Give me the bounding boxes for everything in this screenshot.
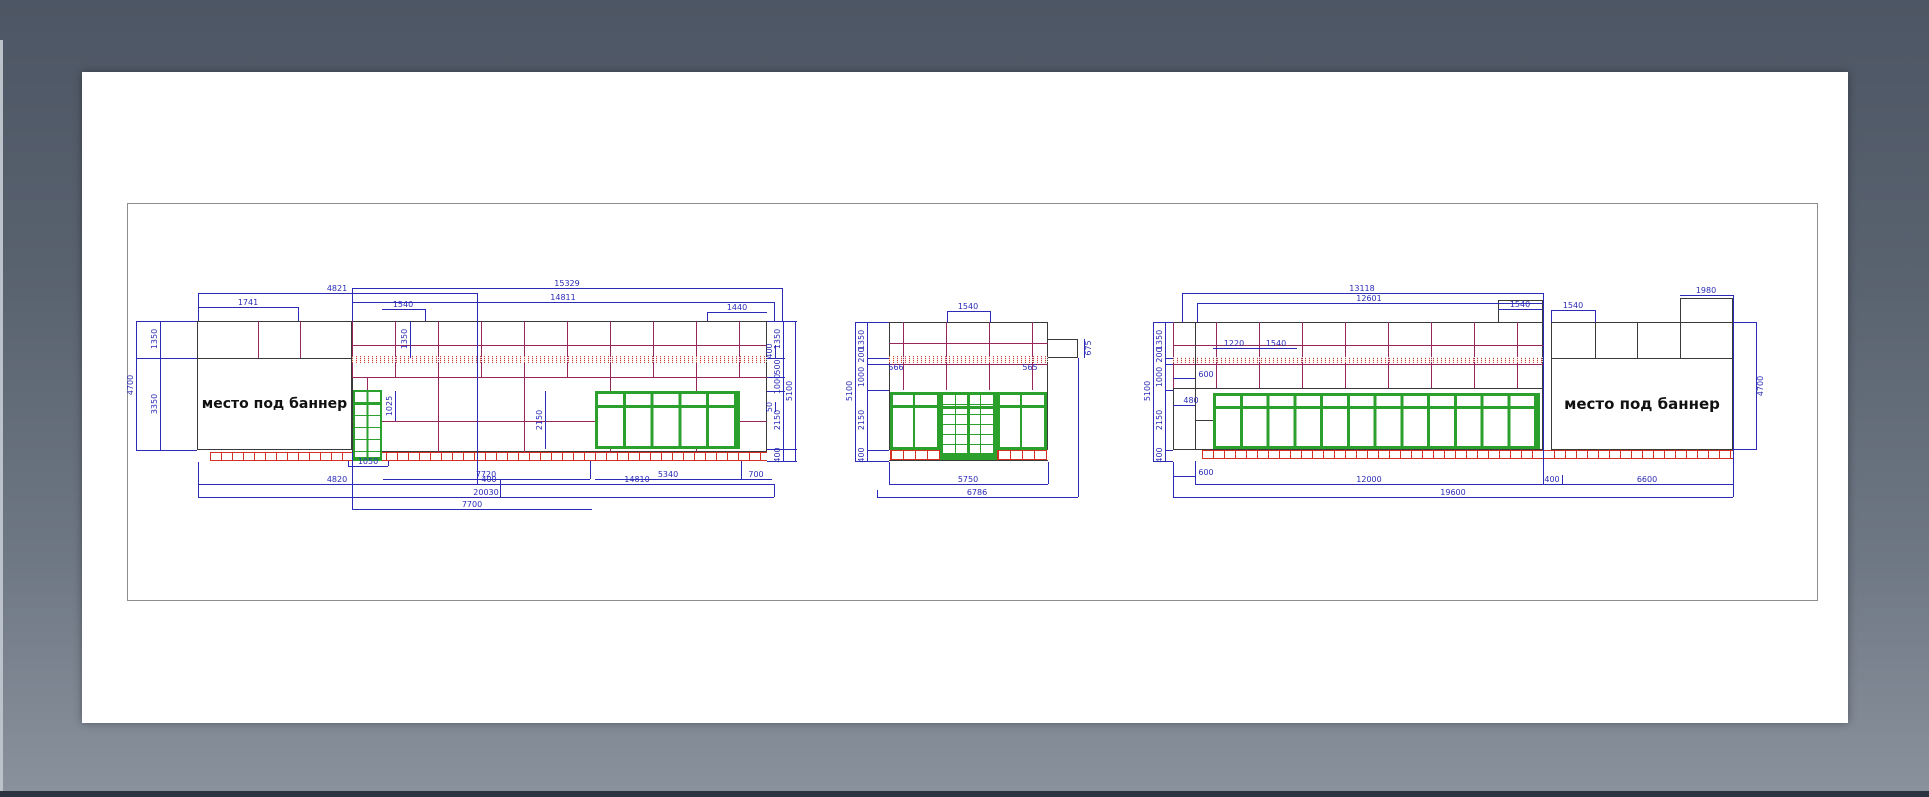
dim-line	[707, 312, 767, 313]
parapet-mullion	[1680, 322, 1681, 358]
storefront-window	[595, 391, 740, 449]
dim-label: 5100	[846, 381, 854, 401]
dim-label: 1000	[1156, 367, 1164, 387]
extension-line	[136, 450, 197, 451]
extension-line	[1733, 449, 1756, 450]
dim-line	[160, 321, 161, 358]
dim-line	[352, 302, 774, 303]
extension-line	[1078, 358, 1079, 497]
side-ledge	[1048, 339, 1078, 358]
extension-line	[298, 307, 299, 321]
extension-line	[1153, 461, 1173, 462]
dim-label: 1540	[393, 301, 413, 309]
extension-line	[1543, 293, 1544, 484]
dim-label: 1350	[401, 329, 409, 349]
banner-label-left: место под баннер	[202, 396, 347, 412]
dim-label: 15329	[554, 280, 579, 288]
dim-label: 700	[748, 471, 763, 479]
dim-line	[1173, 476, 1195, 477]
base-bottom-line	[889, 460, 1048, 461]
dim-label: 500	[774, 359, 782, 374]
dim-label: 5100	[786, 381, 794, 401]
dim-label: 2150	[858, 410, 866, 430]
extension-line	[774, 484, 775, 497]
dim-label: 600	[1198, 371, 1213, 379]
dim-label: 13118	[1349, 285, 1374, 293]
extension-line	[1197, 303, 1198, 322]
dim-line	[595, 479, 741, 480]
extension-line	[425, 309, 426, 321]
dim-label: 7700	[462, 501, 482, 509]
extension-line	[198, 293, 199, 321]
dim-line	[1255, 348, 1297, 349]
dim-line	[352, 288, 782, 289]
dim-label: 200	[858, 347, 866, 362]
dim-label: 1540	[1266, 340, 1286, 348]
dim-label: 4821	[327, 285, 347, 293]
extension-line	[767, 377, 785, 378]
extension-line	[707, 312, 708, 321]
speckle-band	[352, 356, 767, 363]
extension-line	[1153, 322, 1173, 323]
dim-label: 1540	[1563, 302, 1583, 310]
grid-line	[1195, 420, 1213, 421]
dim-label: 1350	[151, 329, 159, 349]
dim-label: 4820	[327, 476, 347, 484]
extension-line	[136, 358, 197, 359]
parapet-mullion	[1595, 322, 1596, 358]
extension-line	[990, 311, 991, 322]
dim-line	[198, 484, 477, 485]
dim-label: 6600	[1637, 476, 1657, 484]
extension-line	[741, 461, 742, 479]
left-facade-upper-grid	[352, 321, 767, 377]
dim-label: 6786	[967, 489, 987, 497]
extension-line	[1195, 461, 1196, 484]
dim-label: 5340	[658, 471, 678, 479]
extension-line	[477, 293, 478, 484]
dim-label: 600	[1198, 469, 1213, 477]
dim-chain-line	[867, 322, 868, 461]
dim-label: 3350	[151, 394, 159, 414]
drawing-sheet: место под баннер 4821 1741 15329 14811 1…	[82, 72, 1848, 723]
dim-line	[795, 321, 796, 461]
extension-line	[348, 461, 349, 466]
extension-line	[1165, 390, 1173, 391]
extension-line	[1165, 358, 1173, 359]
extension-line	[767, 461, 797, 462]
dim-label: 2150	[1156, 410, 1164, 430]
extension-line	[1048, 462, 1049, 484]
dim-label: 1540	[1510, 301, 1530, 309]
extension-line	[782, 288, 783, 321]
dim-line	[947, 311, 990, 312]
dim-label: 1980	[1696, 287, 1716, 295]
dim-label: 12601	[1356, 295, 1381, 303]
extension-line	[590, 461, 591, 479]
dim-label: 565	[1022, 364, 1037, 372]
dim-line	[741, 479, 772, 480]
dim-line	[1173, 405, 1195, 406]
dim-line	[477, 484, 500, 485]
entrance-double-door	[940, 392, 997, 460]
extension-line	[352, 288, 353, 321]
storefront-window	[1213, 393, 1540, 449]
extension-line	[774, 302, 775, 321]
banner-area-left: место под баннер	[197, 358, 352, 450]
grid-line	[352, 345, 767, 346]
extension-line	[1173, 462, 1174, 497]
entrance-door	[353, 390, 382, 461]
dim-label: 400	[1544, 476, 1559, 484]
extension-line	[388, 461, 389, 466]
extension-line	[855, 322, 889, 323]
dim-label: 2150	[536, 410, 544, 430]
dim-line	[1213, 348, 1255, 349]
extension-line	[767, 449, 797, 450]
brick-base	[997, 450, 1047, 460]
dim-label: 1025	[386, 396, 394, 416]
storefront-window	[997, 392, 1047, 450]
grid-line	[889, 343, 1048, 344]
dim-line	[877, 497, 1078, 498]
dim-line	[500, 484, 774, 485]
dim-label: 400	[481, 476, 496, 484]
extension-line	[867, 364, 889, 365]
extension-line	[767, 321, 797, 322]
grid-line	[1173, 388, 1543, 389]
grid-line	[1173, 364, 1543, 365]
extension-line	[1182, 293, 1183, 322]
extension-line	[767, 391, 785, 392]
extension-line	[1595, 310, 1596, 322]
brick-base	[210, 452, 767, 461]
extension-line	[1165, 450, 1173, 451]
extension-line	[1733, 322, 1756, 323]
dim-label: 1350	[774, 329, 782, 349]
dim-line	[545, 391, 546, 449]
dim-label: 566	[888, 364, 903, 372]
extension-line	[947, 311, 948, 322]
extension-line	[500, 479, 501, 498]
dim-label: 4700	[127, 375, 135, 395]
dim-line	[1173, 497, 1733, 498]
parapet-mullion	[258, 321, 259, 358]
dim-line	[889, 484, 1048, 485]
dim-line	[382, 309, 425, 310]
dim-line	[1197, 303, 1542, 304]
dim-label: 675	[1085, 340, 1093, 355]
dim-label: 14811	[550, 294, 575, 302]
extension-line	[352, 452, 353, 510]
dim-line	[160, 358, 161, 450]
dim-line	[1195, 484, 1543, 485]
dim-label: 2150	[774, 410, 782, 430]
desktop-bottom-bar	[0, 791, 1929, 797]
parapet-mullion	[1637, 322, 1638, 358]
dim-label: 20030	[473, 489, 498, 497]
dim-label: 19600	[1440, 489, 1465, 497]
dim-line	[198, 497, 774, 498]
dim-line	[1153, 322, 1154, 461]
extension-line	[867, 358, 889, 359]
dim-label: 1000	[858, 367, 866, 387]
desktop: { "banner": { "left": "место под баннер"…	[0, 0, 1929, 797]
dim-label: 1741	[238, 299, 258, 307]
brick-base	[890, 450, 940, 460]
extension-line	[877, 490, 878, 497]
dim-label: 5750	[958, 476, 978, 484]
extension-line	[1165, 364, 1173, 365]
dim-line	[410, 321, 411, 358]
dim-label: 1050	[358, 458, 378, 466]
extension-line	[867, 450, 889, 451]
extension-line	[1562, 475, 1563, 484]
dim-line	[395, 391, 396, 421]
dim-label: 5100	[1144, 381, 1152, 401]
division-line	[1195, 322, 1196, 450]
extension-line	[1733, 484, 1734, 497]
banner-label-right: место под баннер	[1564, 395, 1720, 413]
dim-label: 200	[1156, 347, 1164, 362]
brick-base	[1202, 450, 1733, 459]
extension-line	[867, 390, 889, 391]
dim-line	[136, 321, 137, 450]
dim-label: 1540	[958, 303, 978, 311]
speckle-band	[889, 356, 1048, 363]
dim-line	[348, 466, 388, 467]
right-facade-upper-grid	[1173, 322, 1543, 388]
dim-label: 1440	[727, 304, 747, 312]
dim-line	[1543, 484, 1562, 485]
extension-line	[855, 461, 889, 462]
speckle-band	[1173, 357, 1543, 363]
dim-label: 1220	[1224, 340, 1244, 348]
storefront-window	[890, 392, 940, 450]
raised-parapet	[1680, 298, 1733, 322]
dim-label: 14810	[624, 476, 649, 484]
extension-line	[767, 358, 785, 359]
extension-line	[1551, 310, 1552, 322]
dim-line	[1680, 295, 1733, 296]
dim-line	[1173, 378, 1195, 379]
dim-line	[198, 307, 298, 308]
dim-label: 4700	[1757, 376, 1765, 396]
dim-line	[1562, 484, 1733, 485]
parapet-mullion	[300, 321, 301, 358]
extension-line	[1733, 295, 1734, 484]
extension-line	[136, 321, 197, 322]
dim-chain-line	[1165, 322, 1166, 461]
dim-line	[1551, 310, 1595, 311]
dim-label: 12000	[1356, 476, 1381, 484]
dim-line	[1498, 309, 1542, 310]
dim-label: 480	[1183, 397, 1198, 405]
banner-area-right: место под баннер	[1551, 358, 1733, 450]
dim-line	[198, 293, 477, 294]
extension-line	[198, 462, 199, 497]
extension-line	[889, 462, 890, 484]
desktop-edge-highlight	[0, 40, 3, 791]
dim-line	[855, 322, 856, 461]
dim-line	[352, 509, 592, 510]
